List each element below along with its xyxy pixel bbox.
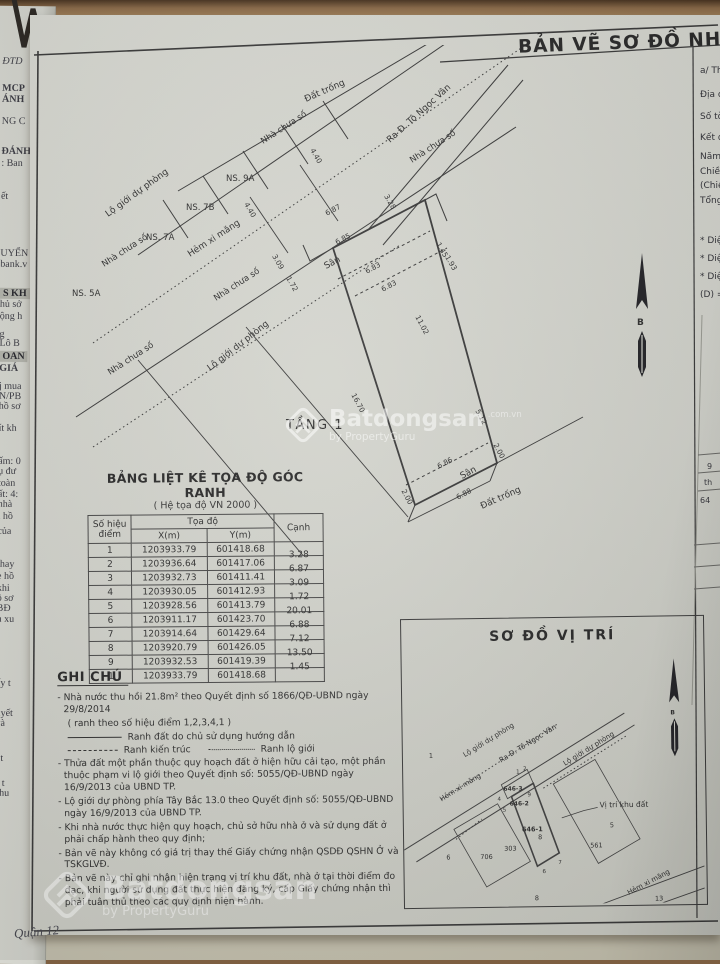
nha-chua-so-label: Nhà chưa số [259, 108, 310, 146]
map-parcel-label: 303 [504, 845, 517, 853]
left-margin-text: i hồ [0, 511, 13, 522]
notes-block: GHI CHÚ Nhà nước thu hồi 21.8m² theo Quy… [57, 664, 403, 912]
map-parcel-label: 646-3 [503, 785, 522, 792]
left-margin-text: của [0, 526, 11, 537]
left-margin-text: Lô B [0, 338, 20, 349]
right-column-text: * Diện [700, 236, 720, 246]
house-ns9a-label: NS. 9A [226, 174, 255, 184]
left-margin-text: ít kh [0, 423, 17, 434]
map-point-label: 7 [558, 860, 562, 866]
house-ns5a-label: NS. 5A [72, 289, 101, 299]
map-point-label: 1 [516, 769, 520, 775]
san-label: Sân [459, 465, 479, 482]
nha-chua-so-label: Nhà chưa số [212, 265, 263, 303]
left-margin-text: ÁNH [2, 94, 24, 105]
left-margin-text: OAN [0, 351, 28, 362]
location-map-box: SƠ ĐỒ VỊ TRÍ Lộ giới dự phòng Ra Đ. Tô N… [400, 615, 708, 909]
survey-sheet: BẢN VẼ SƠ ĐỒ NHÀ a/ ThôngĐịa chSố tờKết … [30, 15, 720, 935]
left-margin-text: toàn [0, 478, 15, 489]
coordinate-table: Số hiệu điểm Tọa độ Cạnh X(m) Y(m) 11203… [87, 513, 324, 684]
note-item: Thửa đất một phần thuộc quy hoạch đất ở … [58, 756, 402, 794]
note-item: Bản vẽ này không có giá trị thay thế Giấ… [58, 845, 402, 871]
right-column-text: Năm [700, 152, 720, 162]
map-point-label: 5 [503, 808, 507, 814]
north-arrow-icon: B [669, 658, 680, 756]
map-point-label: 6 [542, 869, 546, 875]
dotted-line-sample [209, 749, 255, 750]
map-number-label: 13 [655, 894, 663, 902]
left-margin-text: nhà [0, 499, 12, 510]
floor-label: TẦNG 1 [285, 416, 344, 433]
nha-chua-so-label: Nhà chưa số [106, 339, 157, 377]
map-parcel-label: 561 [590, 841, 603, 849]
map-vitri-label: Vị trí khu đất [600, 800, 649, 810]
left-margin-text: bank.v [0, 259, 27, 270]
dim-label: 3.28 [382, 193, 398, 212]
map-hem-label: Hẻm xi măng [626, 868, 671, 897]
dim-label: 3.09 [270, 253, 286, 272]
solid-line-sample [68, 737, 122, 738]
dim-label: 1.93 [443, 254, 459, 272]
left-margin-text: ấy t [0, 678, 11, 689]
dat-trong-label: Đất trống [303, 77, 347, 105]
left-margin-text: ết [1, 191, 8, 202]
col-y: Y(m) [207, 528, 275, 543]
left-margin-text: ĐÁNH [1, 146, 31, 157]
lo-gioi-label: Lộ giới dự phòng [103, 166, 170, 219]
hem-label: Hẻm xi măng [186, 217, 243, 259]
location-map-title: SƠ ĐỒ VỊ TRÍ [401, 626, 703, 646]
north-arrow-icon: B [636, 253, 648, 377]
dim-label: 16.70 [349, 392, 367, 415]
dim-label: 11.02 [413, 314, 431, 336]
location-map: Lộ giới dự phòng Ra Đ. Tô Ngọc Vân Lộ gi… [402, 654, 705, 906]
lo-gioi-label: Lộ giới dự phòng [205, 318, 271, 373]
col-x: X(m) [131, 528, 206, 543]
left-margin-text: hủ sở [0, 299, 22, 310]
left-margin-text: và [0, 718, 5, 729]
notes-heading: GHI CHÚ [57, 670, 129, 686]
left-margin-text: e hồ [0, 571, 14, 582]
dim-label: 4.40 [242, 201, 258, 220]
house-ns7b-label: NS. 7B [186, 203, 215, 213]
left-margin-text: NG C [2, 116, 26, 127]
left-margin-text: hồ sơ [0, 401, 21, 412]
left-margin-text: BĐ [0, 603, 11, 614]
right-column-text: * Diện [700, 272, 720, 282]
map-point-label: 9 [527, 792, 531, 798]
note-item: Lộ giới dự phòng phía Tây Bắc 13.0 theo … [58, 794, 402, 820]
map-parcel-label: 706 [480, 853, 493, 861]
left-margin-text: í t [0, 753, 3, 764]
dim-label: 2.00 [399, 488, 415, 507]
left-margin-text: n xu [0, 614, 14, 625]
left-margin-text: GIÁ [0, 363, 18, 374]
map-number-label: 1 [429, 752, 433, 760]
note-item: Khi nhà nước thực hiện quy hoạch, chủ sở… [58, 819, 402, 845]
dat-trong-label: Đất trống [479, 484, 523, 512]
svg-text:B: B [670, 709, 675, 716]
legend-line: Ranh đất do chủ sử dụng hướng dẫn [68, 730, 402, 743]
left-margin-text: ộng h [0, 311, 22, 322]
coordinate-table-block: BẢNG LIỆT KÊ TỌA ĐỘ GÓC RANH ( Hệ tọa độ… [87, 469, 325, 684]
right-column-text: Địa ch [700, 90, 720, 100]
note-item: Bản vẽ này chỉ ghi nhận hiện trạng vị tr… [59, 871, 403, 909]
left-margin-text: thay [0, 559, 14, 570]
col-edge: Cạnh [274, 513, 323, 541]
svg-text:B: B [637, 318, 644, 328]
left-margin-text: ụ đư [0, 466, 16, 477]
right-column-text: Chiều [700, 167, 720, 177]
dim-label: 6.88 [455, 486, 474, 502]
right-column-text: (Chiề [700, 181, 720, 191]
left-margin-text: MCP [2, 83, 25, 94]
dim-label: 6.83 [380, 278, 398, 293]
right-column-fragment: 64 [700, 496, 710, 505]
map-hem-label: Hẻm xi măng [438, 772, 482, 804]
table-subtitle: ( Hệ tọa độ VN 2000 ) [87, 499, 323, 512]
note-item: Nhà nước thu hồi 21.8m² theo Quyết định … [57, 690, 401, 716]
nha-chua-so-label: Nhà chưa số [100, 231, 151, 269]
map-number-label: 6 [446, 853, 450, 861]
map-number-label: 8 [535, 894, 539, 902]
dim-label: 1.72 [284, 275, 300, 293]
right-column-text: Kết qu [700, 133, 720, 143]
dim-label: 4.40 [308, 147, 324, 166]
map-parcel-label: 646-2 [510, 800, 529, 807]
col-coord: Tọa độ [131, 514, 274, 529]
nha-chua-so-label: Nhà chưa số [408, 127, 459, 165]
map-point-label: 4 [497, 797, 501, 803]
house-ns7a-label: NS. 7A [146, 233, 175, 243]
right-column-fragment: th [704, 478, 712, 487]
map-point-label: 2 [523, 766, 527, 772]
right-column-text: Tổng [700, 196, 720, 206]
left-margin-text: chu [0, 788, 9, 799]
map-number-label: 8 [538, 833, 542, 841]
table-row: 11203933.79601418.683.28 [88, 541, 323, 557]
right-column-fragment: 9 [707, 462, 712, 471]
right-column-text: * Diện [700, 254, 720, 264]
dim-label: 6.86 [436, 455, 455, 471]
left-margin-text: ĐTD [2, 56, 22, 67]
right-column-text: a/ Thông [700, 66, 720, 76]
col-point: Số hiệu điểm [88, 515, 132, 543]
right-column-text: (D) = [700, 290, 720, 300]
dim-label: 6.85 [334, 231, 352, 246]
left-margin-text: S KH [0, 288, 30, 299]
left-margin-text: UYỂN [0, 248, 28, 259]
table-title: BẢNG LIỆT KÊ TỌA ĐỘ GÓC RANH [87, 469, 323, 501]
note-item: ( ranh theo số hiệu điểm 1,2,3,4,1 ) [58, 716, 402, 730]
coord-table-body: 11203933.79601418.683.2821203936.6460141… [88, 541, 324, 683]
left-margin-text: : Ban [1, 158, 23, 169]
map-number-label: 5 [610, 821, 614, 829]
right-column-text: Số tờ [700, 112, 720, 122]
dashed-line-sample [68, 750, 118, 751]
legend-line: Ranh kiến trúcRanh lộ giới [68, 743, 402, 756]
dim-label: 6.83 [364, 260, 382, 275]
